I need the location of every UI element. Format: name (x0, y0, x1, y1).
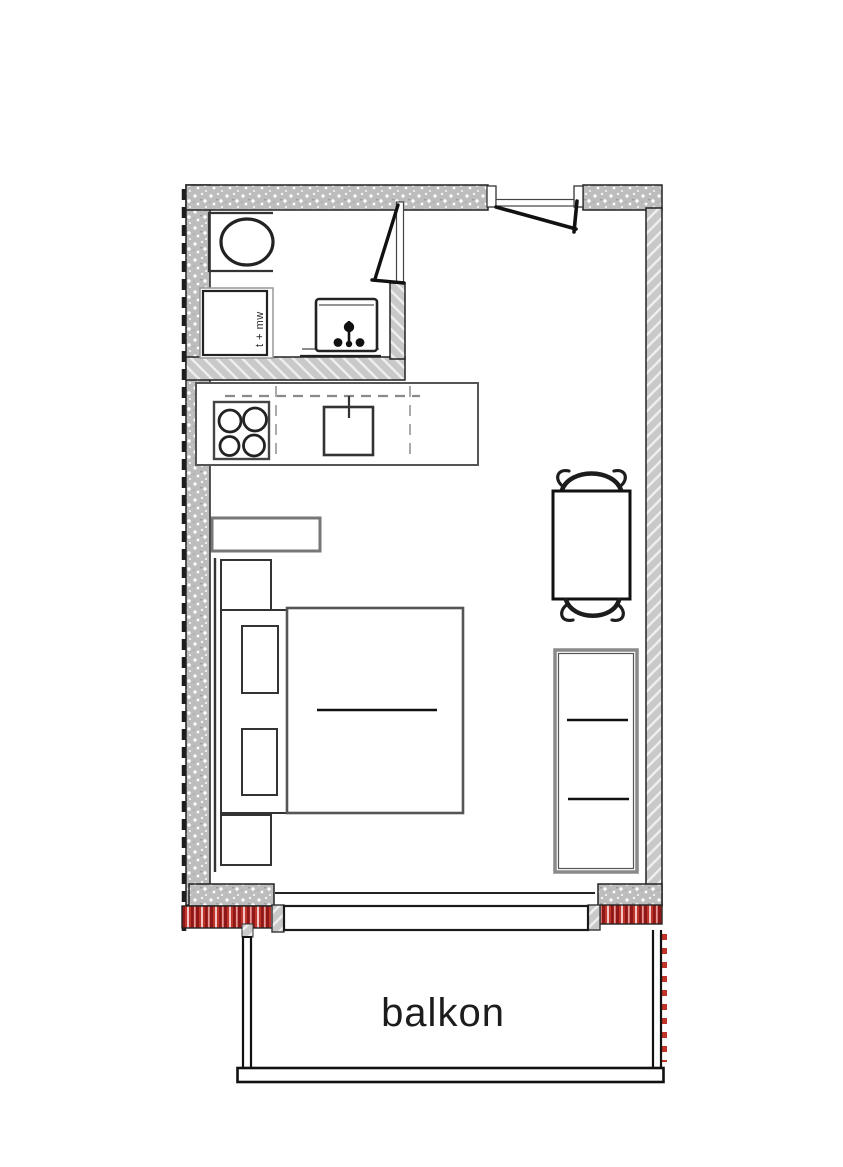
bathroom-bottom-wall (186, 357, 405, 380)
pillow-bottom (242, 729, 277, 795)
balcony: balkon (238, 930, 664, 1082)
floor-plan: t + mw (0, 0, 843, 1167)
balcony-label: balkon (381, 991, 505, 1035)
sliding-window-glass (284, 906, 588, 930)
dining-table (553, 491, 630, 599)
washer-dryer: t + mw (200, 288, 273, 358)
nightstand-top (221, 560, 271, 610)
washer-label: t + mw (254, 311, 266, 347)
bottom-wall-left-segment (189, 884, 274, 906)
right-wall (646, 208, 662, 905)
balcony-junction (182, 893, 664, 1062)
window-post-right (588, 905, 600, 930)
red-insulation-band-left (182, 906, 273, 928)
toilet-bowl (221, 219, 273, 265)
wall-shelf (212, 518, 320, 551)
sideboard-body (555, 650, 637, 872)
top-wall-left-segment (186, 185, 488, 210)
chair-top (562, 474, 621, 491)
entry-door-threshold (496, 200, 574, 207)
chair-bottom (566, 600, 619, 616)
toilet (209, 213, 273, 271)
bottom-wall-right-segment (598, 884, 662, 906)
stove (214, 402, 269, 459)
window-post-left (272, 905, 284, 932)
nightstand-bottom (221, 815, 271, 865)
bathroom-door-frame (397, 202, 404, 283)
entry-door (487, 186, 583, 232)
bathroom-right-wall (390, 283, 405, 359)
entry-door-jamb-left (487, 186, 496, 207)
bathroom-door-leaf (375, 205, 398, 279)
dining-set (553, 471, 630, 621)
kitchen (196, 383, 478, 465)
sideboard (555, 650, 637, 872)
pillow-top (242, 626, 278, 693)
bed (215, 558, 463, 872)
balcony-railing (238, 1068, 664, 1082)
bathroom: t + mw (200, 202, 404, 358)
red-insulation-band-right (600, 905, 662, 924)
washbasin (300, 299, 381, 356)
entry-door-leaf (496, 207, 576, 229)
top-wall-right-segment (583, 185, 662, 210)
living-area (212, 471, 637, 872)
balcony-wall-cap-left (242, 924, 253, 937)
